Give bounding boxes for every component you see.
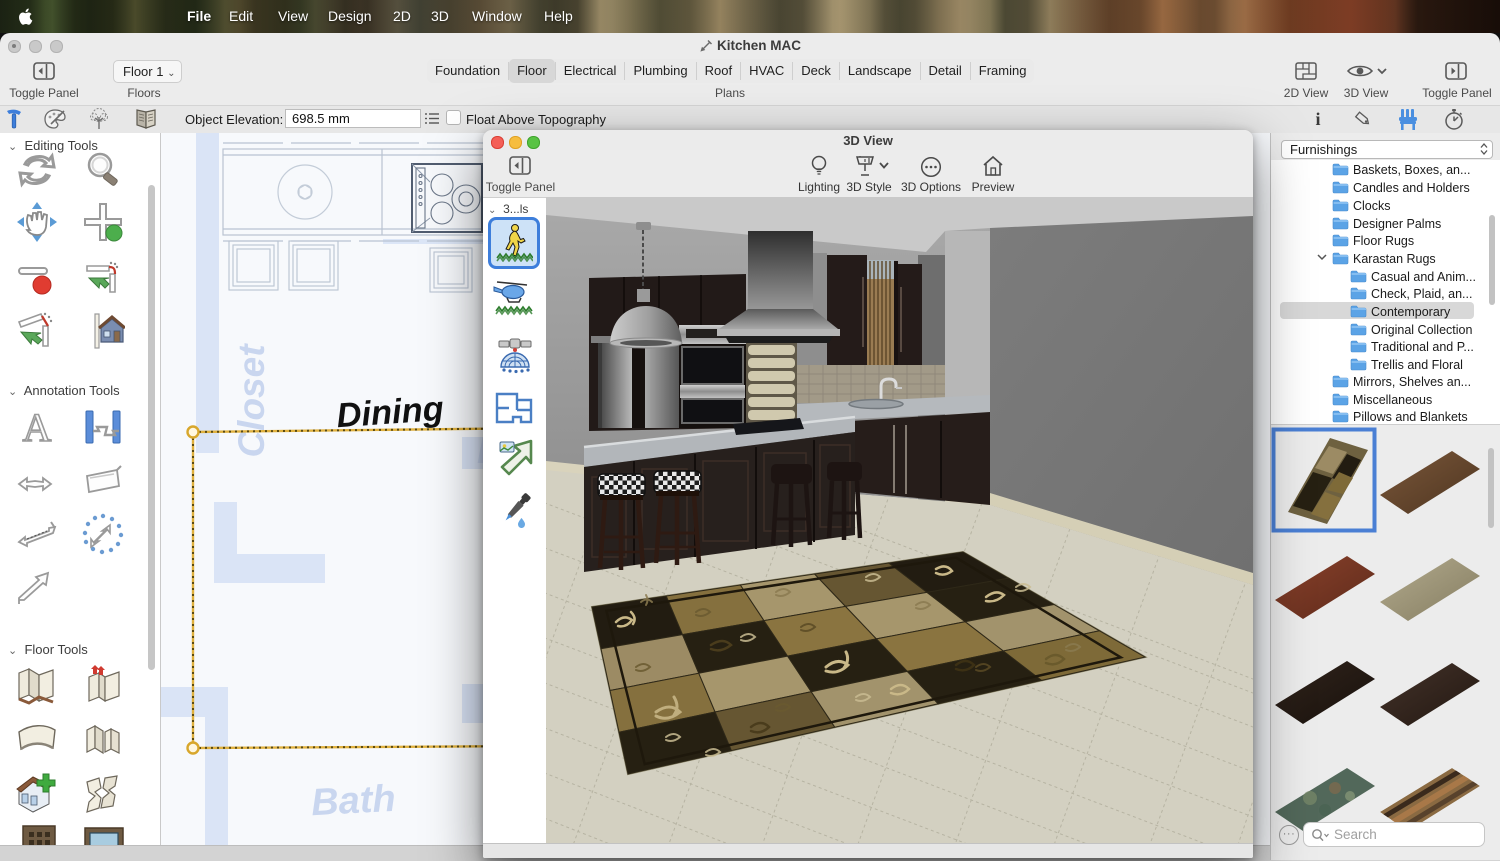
svg-text:Bath: Bath (310, 778, 397, 824)
svg-text:Mirrors, Shelves an...: Mirrors, Shelves an... (1353, 375, 1471, 389)
svg-text:Designer Palms: Designer Palms (1353, 217, 1441, 231)
svg-text:Candles and Holders: Candles and Holders (1353, 181, 1470, 195)
svg-text:Pillows and Blankets: Pillows and Blankets (1353, 410, 1468, 424)
svg-text:Karastan Rugs: Karastan Rugs (1353, 252, 1436, 266)
svg-text:Trellis and Floral: Trellis and Floral (1371, 358, 1463, 372)
svg-text:A: A (23, 405, 52, 449)
svg-text:Clocks: Clocks (1353, 199, 1391, 213)
svg-text:Baskets, Boxes, an...: Baskets, Boxes, an... (1353, 163, 1470, 177)
svg-text:Original Collection: Original Collection (1371, 323, 1472, 337)
svg-text:Traditional and P...: Traditional and P... (1371, 340, 1474, 354)
svg-text:i: i (1315, 110, 1320, 128)
svg-text:Contemporary: Contemporary (1371, 305, 1451, 319)
svg-text:Check, Plaid, an...: Check, Plaid, an... (1371, 287, 1472, 301)
svg-text:Miscellaneous: Miscellaneous (1353, 393, 1432, 407)
svg-text:Casual and Anim...: Casual and Anim... (1371, 270, 1476, 284)
svg-text:Closet: Closet (231, 343, 272, 458)
svg-text:Floor Rugs: Floor Rugs (1353, 234, 1414, 248)
